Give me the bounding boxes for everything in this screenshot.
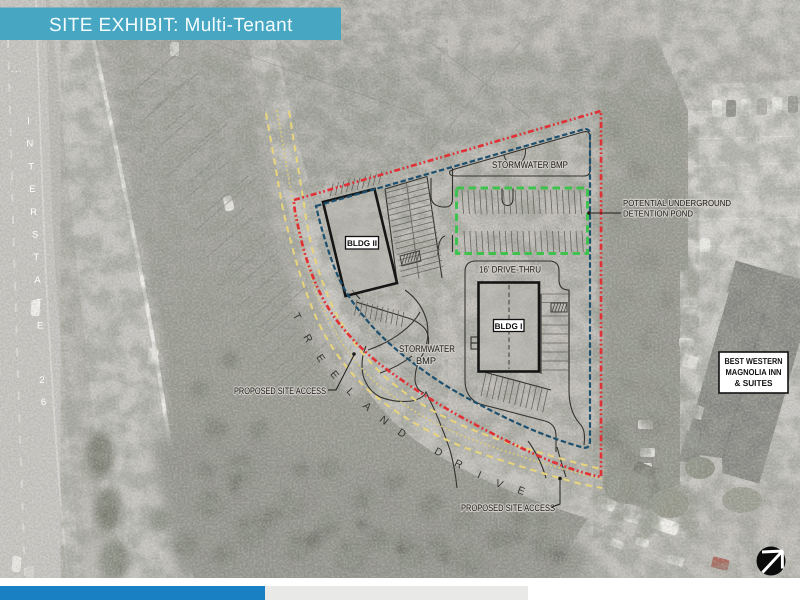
svg-text:BEST WESTERN: BEST WESTERN xyxy=(725,356,783,366)
svg-text:STORMWATER BMP: STORMWATER BMP xyxy=(492,160,568,171)
svg-text:...: ... xyxy=(11,64,23,74)
svg-text:BLDG II: BLDG II xyxy=(347,239,377,248)
svg-text:T: T xyxy=(28,161,34,172)
svg-text:MAGNOLIA INN: MAGNOLIA INN xyxy=(726,367,782,377)
svg-text:BMP: BMP xyxy=(416,356,436,367)
svg-text:T: T xyxy=(36,298,42,309)
svg-text:I: I xyxy=(27,116,30,127)
svg-text:PROPOSED SITE ACCESS: PROPOSED SITE ACCESS xyxy=(234,385,326,396)
svg-text:R: R xyxy=(30,207,37,218)
svg-text:S: S xyxy=(32,230,38,241)
svg-text:STORMWATER: STORMWATER xyxy=(399,344,455,355)
svg-text:16’ DRIVE-THRU: 16’ DRIVE-THRU xyxy=(479,265,541,275)
svg-text:A: A xyxy=(34,275,41,286)
svg-text:PROPOSED SITE ACCESS: PROPOSED SITE ACCESS xyxy=(461,502,555,513)
svg-text:SITE EXHIBIT: Multi-Tenant: SITE EXHIBIT: Multi-Tenant xyxy=(49,15,293,36)
svg-text:2: 2 xyxy=(39,375,44,386)
svg-text:DETENTION POND: DETENTION POND xyxy=(623,209,693,219)
svg-text:POTENTIAL UNDERGROUND: POTENTIAL UNDERGROUND xyxy=(623,198,731,208)
svg-text:& SUITES: & SUITES xyxy=(735,378,773,388)
svg-text:BLDG I: BLDG I xyxy=(495,322,523,331)
svg-text:E: E xyxy=(37,320,43,331)
svg-text:6: 6 xyxy=(41,397,46,408)
svg-text:E: E xyxy=(29,184,35,195)
svg-text:N: N xyxy=(26,139,33,150)
svg-text:T: T xyxy=(33,252,39,263)
